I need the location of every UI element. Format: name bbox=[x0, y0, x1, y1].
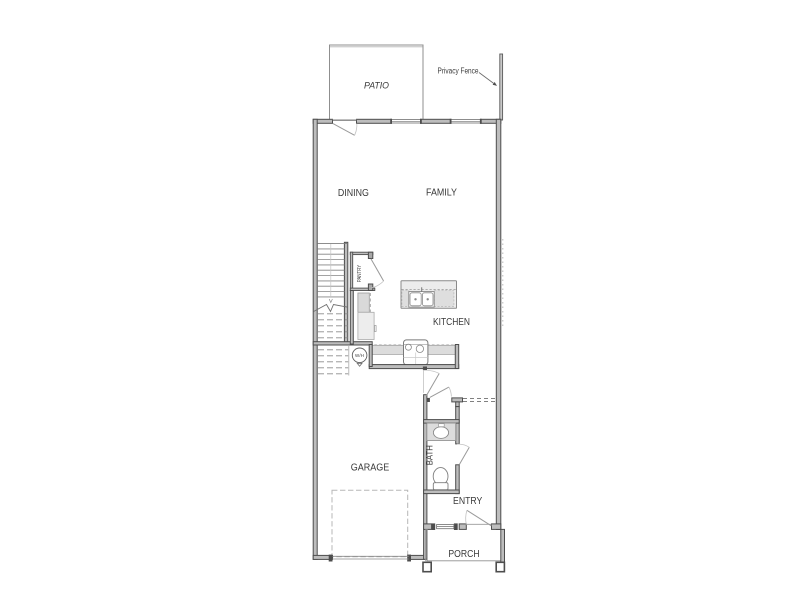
svg-text:PORCH: PORCH bbox=[448, 549, 479, 560]
svg-text:Privacy Fence: Privacy Fence bbox=[438, 66, 479, 75]
svg-text:GARAGE: GARAGE bbox=[351, 463, 390, 474]
svg-text:PATIO: PATIO bbox=[364, 81, 390, 92]
svg-text:DINING: DINING bbox=[338, 188, 369, 199]
svg-text:BATH: BATH bbox=[425, 445, 435, 465]
svg-text:PANTRY: PANTRY bbox=[357, 264, 363, 282]
svg-text:KITCHEN: KITCHEN bbox=[433, 317, 470, 328]
svg-text:ENTRY: ENTRY bbox=[453, 496, 483, 507]
svg-text:FAMILY: FAMILY bbox=[426, 187, 457, 198]
svg-text:W/H: W/H bbox=[355, 353, 364, 358]
